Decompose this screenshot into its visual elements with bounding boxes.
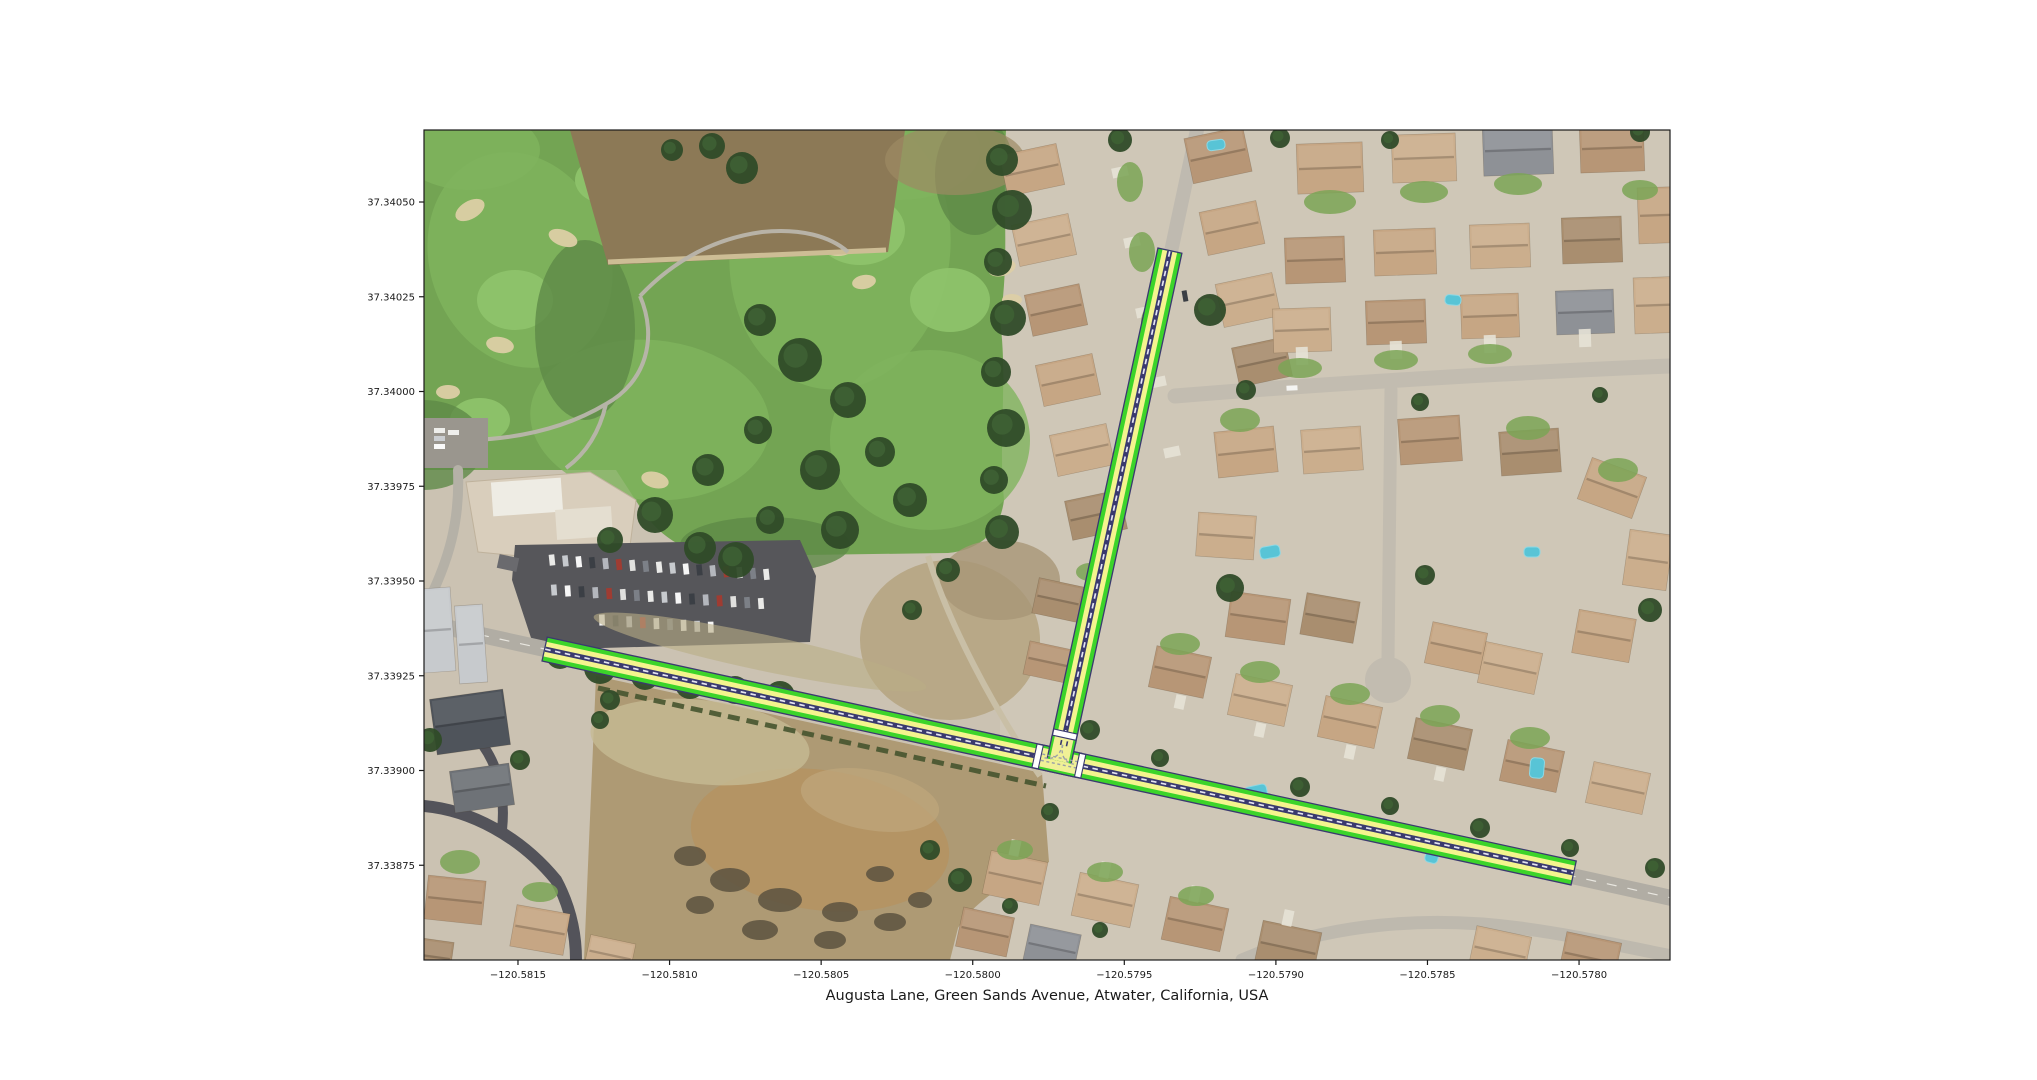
parked-car <box>575 556 582 568</box>
tree <box>718 542 754 578</box>
lane-end-mark <box>1066 741 1067 746</box>
tree <box>597 527 623 553</box>
parked-car <box>675 592 681 603</box>
tree <box>1194 294 1226 326</box>
tree <box>1630 122 1650 142</box>
parked-car <box>549 554 556 566</box>
tree <box>992 190 1032 230</box>
tree <box>778 338 822 382</box>
tree <box>1592 387 1608 403</box>
parked-car <box>434 428 445 433</box>
lawn <box>1129 232 1155 272</box>
tree <box>1561 839 1579 857</box>
tree <box>920 840 940 860</box>
pool <box>1524 547 1540 557</box>
house <box>449 763 514 813</box>
house <box>1300 593 1360 644</box>
brush <box>674 846 706 866</box>
tree <box>821 511 859 549</box>
tree <box>591 711 609 729</box>
lawn <box>1468 344 1512 364</box>
tree <box>1092 922 1108 938</box>
parked-car <box>647 591 653 602</box>
parked-car <box>696 564 703 576</box>
y-tick-label: 37.33975 <box>367 482 415 493</box>
lawn <box>1304 190 1356 214</box>
parked-car <box>616 559 623 571</box>
lawn <box>1374 350 1418 370</box>
parked-car <box>642 561 649 573</box>
x-tick-label: −120.5815 <box>490 970 546 981</box>
tree <box>1290 777 1310 797</box>
y-tick-label: 37.33875 <box>367 861 415 872</box>
parked-car <box>730 596 736 607</box>
brush <box>710 868 750 892</box>
y-tick-label: 37.34025 <box>367 292 415 303</box>
house <box>1391 133 1457 183</box>
y-tick-label: 37.33900 <box>367 766 415 777</box>
lawn <box>1598 458 1638 482</box>
tree <box>980 466 1008 494</box>
lawn <box>1240 661 1280 683</box>
tree <box>1151 749 1169 767</box>
tree <box>936 558 960 582</box>
tree <box>990 300 1026 336</box>
parked-car <box>758 598 764 609</box>
parked-car <box>763 569 770 581</box>
brush <box>758 888 802 912</box>
tree <box>865 437 895 467</box>
brush <box>686 896 714 914</box>
parked-car <box>606 588 612 599</box>
house <box>1272 307 1332 353</box>
lawn <box>1494 173 1542 195</box>
house <box>1196 512 1257 560</box>
tree <box>893 483 927 517</box>
tree <box>726 152 758 184</box>
tree <box>1236 380 1256 400</box>
parked-car <box>434 436 445 441</box>
lane-end-mark <box>1061 740 1062 745</box>
brush <box>908 892 932 908</box>
lawn <box>1506 416 1550 440</box>
putting-green <box>910 268 990 332</box>
lawn <box>1220 408 1260 432</box>
x-tick-label: −120.5800 <box>945 970 1001 981</box>
tree <box>1080 720 1100 740</box>
car <box>1286 385 1297 391</box>
brush <box>742 920 778 940</box>
house <box>1397 415 1462 465</box>
sand-bunker <box>436 385 460 399</box>
parked-car <box>709 565 716 577</box>
tree <box>1381 131 1399 149</box>
parked-car <box>656 561 663 573</box>
tree <box>986 144 1018 176</box>
pool <box>1445 294 1462 305</box>
tree <box>981 357 1011 387</box>
parked-car <box>661 592 667 603</box>
street-culdesac <box>1388 390 1391 658</box>
house <box>1284 236 1346 284</box>
tree <box>1470 818 1490 838</box>
y-tick-label: 37.34050 <box>367 198 415 209</box>
tree <box>744 304 776 336</box>
parked-car <box>562 555 569 567</box>
tree <box>1270 128 1290 148</box>
x-axis-label: Augusta Lane, Green Sands Avenue, Atwate… <box>826 988 1269 1004</box>
house <box>1296 142 1364 194</box>
house <box>454 604 487 684</box>
house <box>402 936 454 976</box>
lawn <box>1117 162 1143 202</box>
tree <box>692 454 724 486</box>
tree <box>1645 858 1665 878</box>
tree <box>984 248 1012 276</box>
tree <box>1411 393 1429 411</box>
house <box>1622 529 1673 591</box>
house <box>1555 289 1615 335</box>
parked-car <box>634 590 640 601</box>
tree <box>1216 574 1244 602</box>
tree <box>1041 803 1059 821</box>
parked-car <box>602 558 609 570</box>
x-tick-label: −120.5805 <box>793 970 849 981</box>
lawn <box>1087 862 1123 882</box>
x-tick-label: −120.5810 <box>642 970 698 981</box>
tree <box>684 532 716 564</box>
lawn <box>1178 886 1214 906</box>
house <box>1561 216 1623 264</box>
y-tick-label: 37.34000 <box>367 387 415 398</box>
house <box>510 905 570 956</box>
parked-car <box>629 560 636 572</box>
tree <box>744 416 772 444</box>
tree <box>1415 565 1435 585</box>
parked-car <box>669 562 676 574</box>
x-tick-label: −120.5790 <box>1248 970 1304 981</box>
driving-range <box>570 130 905 265</box>
tree <box>1108 128 1132 152</box>
tree <box>418 728 442 752</box>
tree <box>902 600 922 620</box>
y-ticks: 37.3405037.3402537.3400037.3397537.33950… <box>367 198 424 872</box>
map-figure: −120.5815−120.5810−120.5805−120.5800−120… <box>0 0 2037 1080</box>
tree <box>985 515 1019 549</box>
fairway <box>400 110 540 190</box>
parked-car <box>716 595 722 606</box>
house <box>429 689 510 755</box>
house <box>1482 124 1554 176</box>
lawn <box>1400 181 1448 203</box>
tree <box>1381 797 1399 815</box>
house <box>1214 426 1278 478</box>
x-tick-label: −120.5795 <box>1096 970 1152 981</box>
tree <box>510 750 530 770</box>
x-ticks: −120.5815−120.5810−120.5805−120.5800−120… <box>490 960 1607 981</box>
y-tick-label: 37.33950 <box>367 577 415 588</box>
parked-car <box>620 589 626 600</box>
driveway <box>1579 329 1592 347</box>
tree <box>800 450 840 490</box>
lawn <box>1330 683 1370 705</box>
parked-car <box>551 584 557 595</box>
parked-car <box>592 587 598 598</box>
tree <box>1638 598 1662 622</box>
tree <box>987 409 1025 447</box>
y-tick-label: 37.33925 <box>367 671 415 682</box>
brush <box>814 931 846 949</box>
house <box>1301 426 1364 474</box>
lawn <box>1420 705 1460 727</box>
parked-car <box>448 430 459 435</box>
lawn <box>997 840 1033 860</box>
tree <box>756 506 784 534</box>
parked-car <box>689 593 695 604</box>
parked-car <box>703 594 709 605</box>
brush <box>874 913 906 931</box>
house <box>1373 228 1437 276</box>
x-tick-label: −120.5785 <box>1399 970 1455 981</box>
lawn <box>1510 727 1550 749</box>
house <box>1633 276 1687 334</box>
tree <box>699 133 725 159</box>
brush <box>866 866 894 882</box>
lawn <box>440 850 480 874</box>
small-parking-lot <box>424 418 488 468</box>
house <box>1469 223 1530 269</box>
pool <box>1206 139 1225 151</box>
house <box>1365 299 1426 345</box>
tree <box>637 497 673 533</box>
parked-car <box>744 597 750 608</box>
house <box>1460 293 1520 339</box>
lawn <box>522 882 558 902</box>
x-tick-label: −120.5780 <box>1551 970 1607 981</box>
culdesac-bulb <box>1365 657 1411 703</box>
parked-car <box>578 586 584 597</box>
lawn <box>1622 180 1658 200</box>
lawn <box>1160 633 1200 655</box>
tree <box>830 382 866 418</box>
parked-car <box>434 444 445 449</box>
brush <box>822 902 858 922</box>
house <box>424 875 486 925</box>
tree <box>1002 898 1018 914</box>
parked-car <box>589 557 596 569</box>
tree <box>661 139 683 161</box>
parked-car <box>683 563 690 575</box>
pool <box>1529 757 1545 778</box>
parked-car <box>565 585 571 596</box>
figure-canvas: −120.5815−120.5810−120.5805−120.5800−120… <box>0 0 2037 1080</box>
lawn <box>1278 358 1322 378</box>
tree <box>948 868 972 892</box>
tree <box>600 690 620 710</box>
